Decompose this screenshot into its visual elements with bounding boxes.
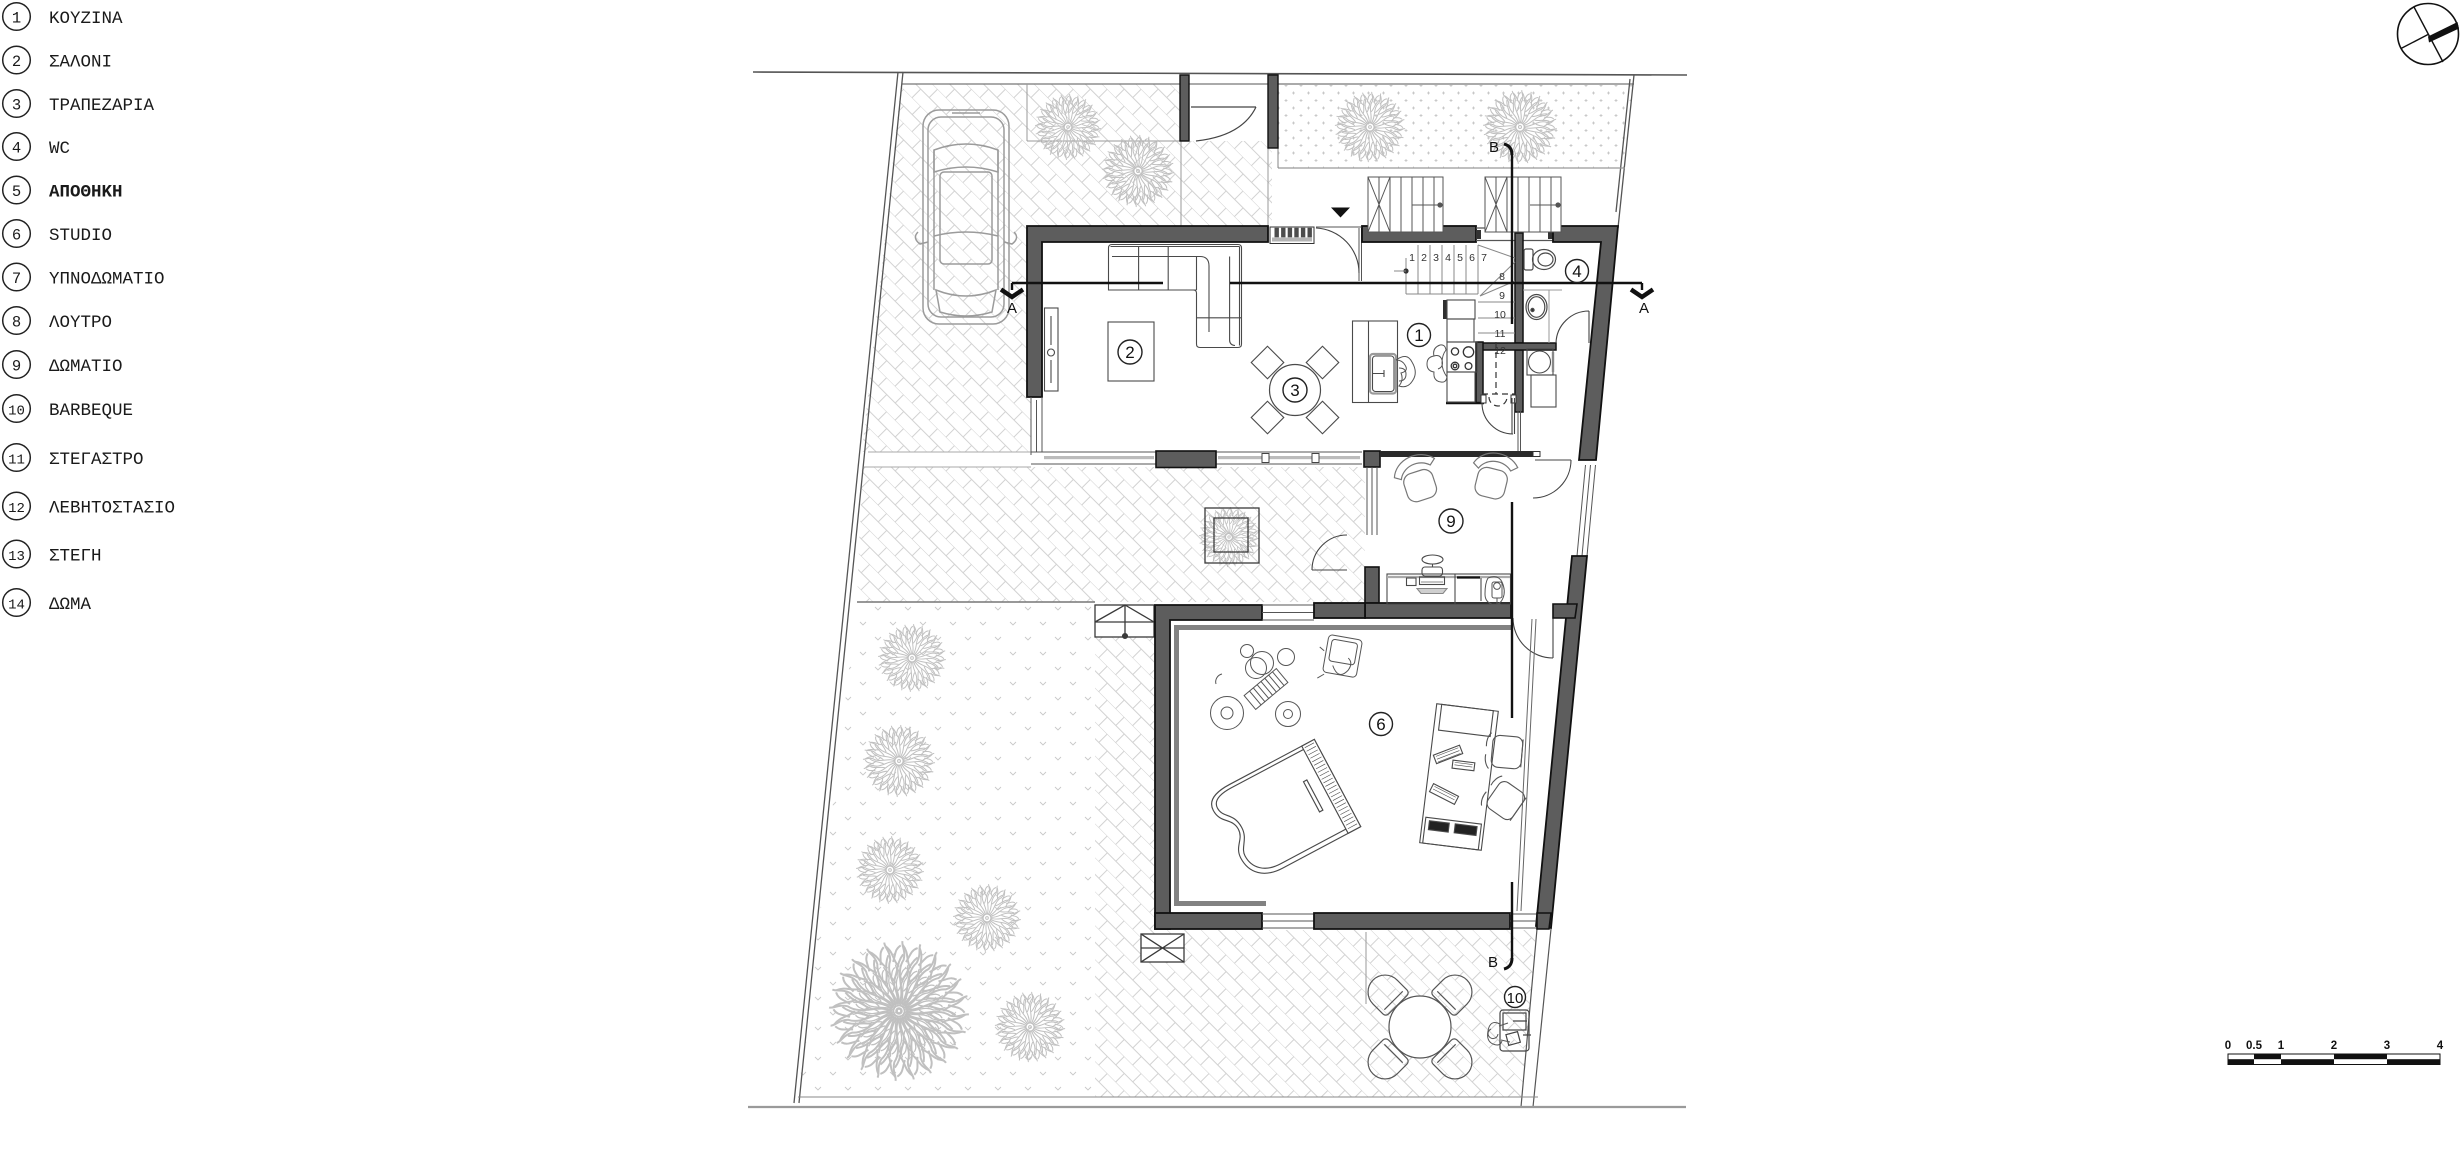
svg-text:1: 1 [12, 10, 21, 28]
svg-text:2: 2 [2331, 1040, 2337, 1052]
svg-text:ΛΟΥΤΡΟ: ΛΟΥΤΡΟ [49, 313, 112, 333]
svg-text:4: 4 [1572, 262, 1581, 281]
svg-text:6: 6 [1376, 715, 1385, 734]
svg-text:3: 3 [1290, 381, 1299, 400]
svg-text:9: 9 [1446, 512, 1455, 531]
svg-text:STUDIO: STUDIO [49, 226, 112, 246]
svg-text:8: 8 [1499, 271, 1505, 283]
svg-text:10: 10 [1494, 309, 1506, 321]
svg-text:ΑΠΟΘΗΚΗ: ΑΠΟΘΗΚΗ [49, 183, 123, 203]
svg-text:14: 14 [8, 598, 25, 614]
svg-text:3: 3 [2384, 1040, 2390, 1052]
svg-text:11: 11 [1495, 328, 1506, 340]
svg-text:2: 2 [12, 53, 21, 71]
svg-text:ΣΤΕΓΑΣΤΡΟ: ΣΤΕΓΑΣΤΡΟ [49, 450, 144, 470]
svg-text:2: 2 [1421, 252, 1427, 264]
svg-text:ΥΠΝΟΔΩΜΑΤΙΟ: ΥΠΝΟΔΩΜΑΤΙΟ [49, 270, 165, 290]
svg-text:1: 1 [1414, 326, 1423, 345]
svg-text:9: 9 [12, 358, 21, 376]
svg-text:ΔΩΜΑ: ΔΩΜΑ [49, 595, 92, 615]
svg-text:10: 10 [1507, 990, 1524, 1007]
svg-text:ΣΑΛΟΝΙ: ΣΑΛΟΝΙ [49, 53, 112, 73]
svg-text:B: B [1488, 954, 1498, 971]
svg-text:ΚΟΥΖΙΝΑ: ΚΟΥΖΙΝΑ [49, 9, 123, 29]
svg-text:13: 13 [8, 549, 25, 565]
svg-text:8: 8 [12, 314, 21, 332]
svg-text:12: 12 [8, 501, 25, 517]
svg-text:ΛΕΒΗΤΟΣΤΑΣΙΟ: ΛΕΒΗΤΟΣΤΑΣΙΟ [49, 499, 175, 519]
svg-text:6: 6 [12, 227, 21, 245]
svg-text:ΤΡΑΠΕΖΑΡΙΑ: ΤΡΑΠΕΖΑΡΙΑ [49, 96, 155, 116]
svg-text:4: 4 [1445, 252, 1451, 264]
svg-text:2: 2 [1125, 343, 1134, 362]
svg-text:BARBEQUE: BARBEQUE [49, 401, 133, 421]
svg-text:11: 11 [8, 453, 25, 469]
svg-text:ΔΩΜΑΤΙΟ: ΔΩΜΑΤΙΟ [49, 357, 123, 377]
svg-text:9: 9 [1499, 290, 1505, 302]
svg-text:WC: WC [49, 139, 70, 159]
svg-text:B: B [1489, 139, 1499, 156]
svg-text:10: 10 [8, 404, 25, 420]
svg-text:0.5: 0.5 [2246, 1040, 2263, 1052]
svg-text:A: A [1639, 300, 1649, 317]
svg-text:12: 12 [1494, 345, 1506, 357]
svg-text:7: 7 [1481, 252, 1487, 264]
svg-text:0: 0 [2225, 1040, 2231, 1052]
svg-text:7: 7 [12, 270, 21, 288]
svg-text:3: 3 [1433, 252, 1439, 264]
svg-text:3: 3 [12, 97, 21, 115]
svg-text:ΣΤΕΓΗ: ΣΤΕΓΗ [49, 547, 102, 567]
svg-text:A: A [1007, 300, 1017, 317]
svg-text:4: 4 [2437, 1040, 2444, 1052]
svg-text:1: 1 [1409, 252, 1415, 264]
svg-text:5: 5 [12, 183, 21, 201]
svg-text:6: 6 [1469, 252, 1475, 264]
svg-text:1: 1 [2278, 1040, 2285, 1052]
svg-text:4: 4 [12, 140, 21, 158]
svg-text:5: 5 [1457, 252, 1463, 264]
